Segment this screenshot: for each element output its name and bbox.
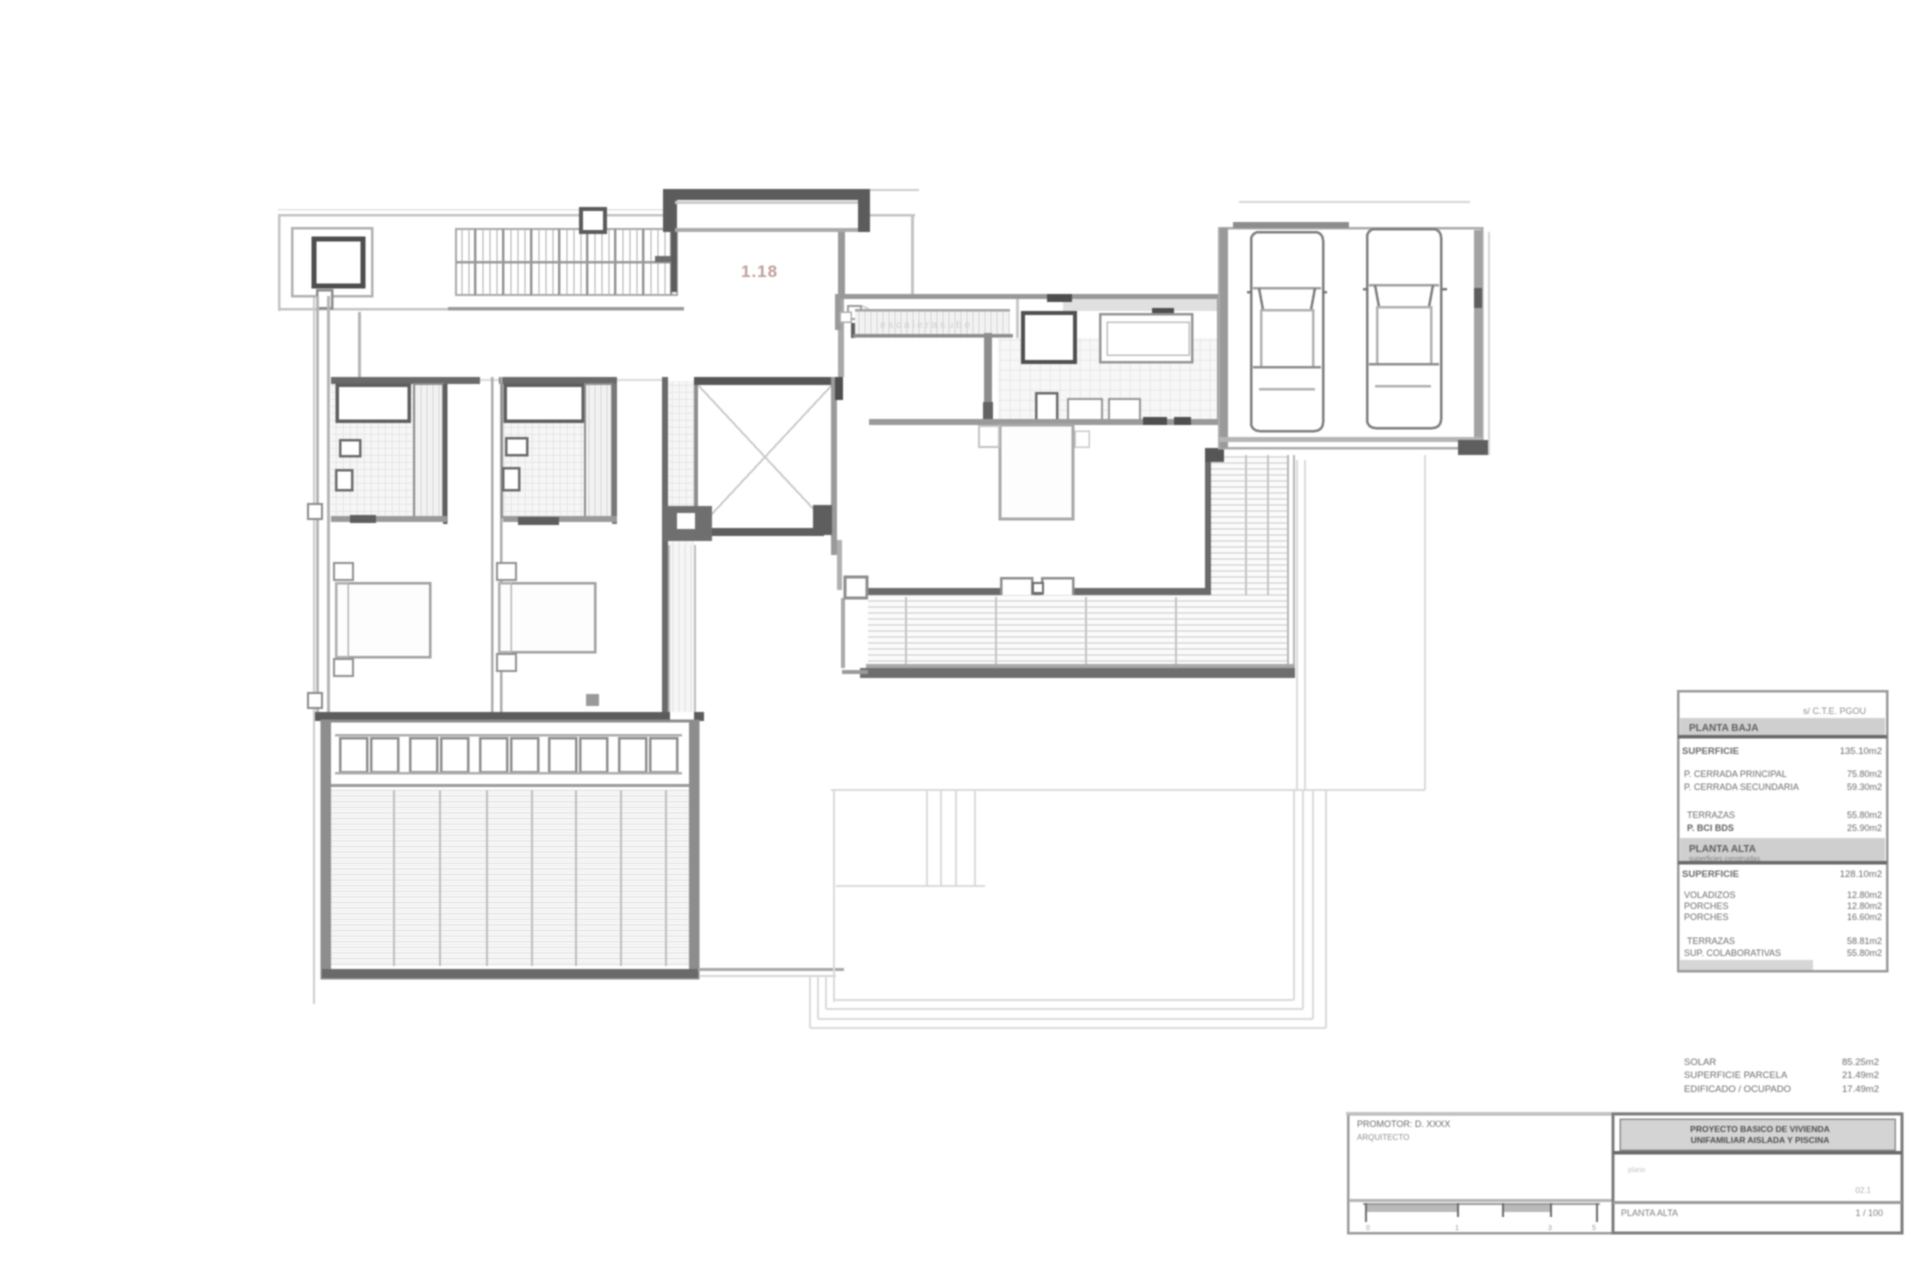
svg-text:plano: plano [1628, 1167, 1645, 1174]
svg-text:ARQUITECTO: ARQUITECTO [1357, 1133, 1409, 1142]
svg-text:VOLADIZOS: VOLADIZOS [1684, 890, 1736, 900]
svg-text:25.90m2: 25.90m2 [1847, 823, 1882, 833]
svg-text:e s c a l e r a s u b e: e s c a l e r a s u b e [880, 320, 970, 331]
svg-text:1 / 100: 1 / 100 [1855, 1208, 1883, 1218]
svg-text:P. CERRADA PRINCIPAL: P. CERRADA PRINCIPAL [1684, 769, 1787, 779]
svg-text:TERRAZAS: TERRAZAS [1687, 936, 1735, 946]
svg-text:59.30m2: 59.30m2 [1847, 782, 1882, 792]
svg-text:P. CERRADA SECUNDARIA: P. CERRADA SECUNDARIA [1684, 782, 1799, 792]
svg-text:02.1: 02.1 [1855, 1186, 1871, 1195]
svg-text:12.80m2: 12.80m2 [1847, 890, 1882, 900]
svg-text:17.49m2: 17.49m2 [1842, 1084, 1879, 1095]
svg-text:3: 3 [1548, 1225, 1552, 1232]
svg-text:PROYECTO BASICO DE VIVIENDA: PROYECTO BASICO DE VIVIENDA [1690, 1124, 1830, 1134]
svg-text:SUPERFICIE: SUPERFICIE [1682, 746, 1739, 757]
svg-text:EDIFICADO / OCUPADO: EDIFICADO / OCUPADO [1684, 1084, 1791, 1095]
svg-text:58.81m2: 58.81m2 [1847, 936, 1882, 946]
svg-text:SUP. COLABORATIVAS: SUP. COLABORATIVAS [1684, 948, 1781, 958]
svg-text:P. BCI BDS: P. BCI BDS [1687, 823, 1734, 833]
svg-text:SUPERFICIE PARCELA: SUPERFICIE PARCELA [1684, 1070, 1788, 1081]
svg-text:PORCHES: PORCHES [1684, 901, 1729, 911]
svg-text:55.80m2: 55.80m2 [1847, 948, 1882, 958]
svg-text:SOLAR: SOLAR [1684, 1057, 1716, 1068]
svg-text:12.80m2: 12.80m2 [1847, 901, 1882, 911]
svg-text:TERRAZAS: TERRAZAS [1687, 810, 1735, 820]
svg-text:0: 0 [1366, 1225, 1370, 1232]
svg-text:PORCHES: PORCHES [1684, 912, 1729, 922]
svg-text:21.49m2: 21.49m2 [1842, 1070, 1879, 1081]
svg-text:128.10m2: 128.10m2 [1840, 869, 1882, 880]
svg-text:5: 5 [1592, 1225, 1596, 1232]
svg-text:UNIFAMILIAR AISLADA Y PISCINA: UNIFAMILIAR AISLADA Y PISCINA [1691, 1135, 1830, 1145]
svg-text:PLANTA BAJA: PLANTA BAJA [1689, 723, 1758, 734]
svg-text:1: 1 [1455, 1225, 1459, 1232]
svg-text:1.18: 1.18 [741, 262, 778, 281]
svg-text:PROMOTOR: D. XXXX: PROMOTOR: D. XXXX [1357, 1119, 1450, 1129]
svg-text:PLANTA ALTA: PLANTA ALTA [1621, 1208, 1678, 1218]
svg-text:PLANTA ALTA: PLANTA ALTA [1689, 844, 1756, 855]
svg-text:16.60m2: 16.60m2 [1847, 912, 1882, 922]
svg-text:75.80m2: 75.80m2 [1847, 769, 1882, 779]
svg-text:55.80m2: 55.80m2 [1847, 810, 1882, 820]
svg-text:s/ C.T.E. PGOU: s/ C.T.E. PGOU [1803, 706, 1866, 716]
svg-text:135.10m2: 135.10m2 [1840, 746, 1882, 757]
svg-text:SUPERFICIE: SUPERFICIE [1682, 869, 1739, 880]
svg-text:85.25m2: 85.25m2 [1842, 1057, 1879, 1068]
